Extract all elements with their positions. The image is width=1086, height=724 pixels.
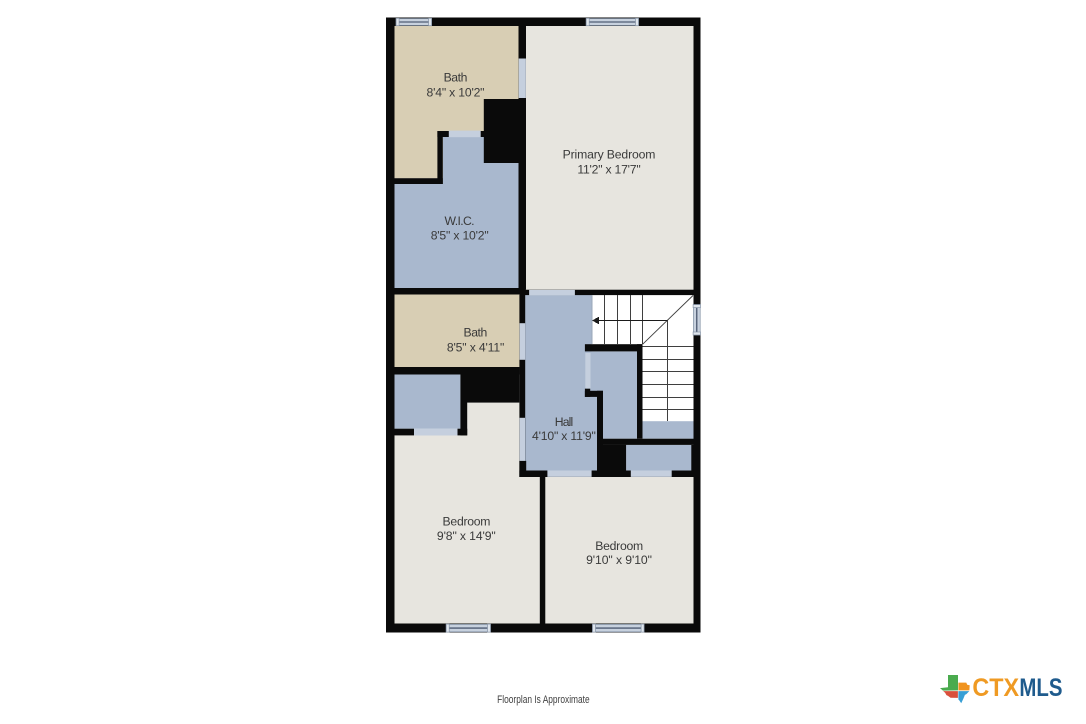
svg-text:MLS: MLS bbox=[1019, 674, 1062, 702]
svg-text:8'4" x 10'2": 8'4" x 10'2" bbox=[427, 86, 485, 100]
svg-text:Bath: Bath bbox=[464, 325, 488, 339]
svg-text:W.I.C.: W.I.C. bbox=[445, 214, 475, 228]
svg-text:8'5" x 4'11": 8'5" x 4'11" bbox=[447, 341, 504, 355]
svg-text:4'10" x 11'9": 4'10" x 11'9" bbox=[532, 429, 596, 443]
svg-text:Floorplan Is Approximate: Floorplan Is Approximate bbox=[497, 694, 590, 706]
svg-text:Hall: Hall bbox=[555, 415, 574, 429]
svg-text:Primary Bedroom: Primary Bedroom bbox=[563, 148, 656, 162]
svg-text:9'8" x 14'9": 9'8" x 14'9" bbox=[437, 529, 496, 543]
svg-text:11'2" x 17'7": 11'2" x 17'7" bbox=[577, 162, 640, 176]
svg-text:CTX: CTX bbox=[972, 674, 1019, 702]
svg-text:Bedroom: Bedroom bbox=[443, 515, 491, 529]
svg-text:9'10" x 9'10": 9'10" x 9'10" bbox=[586, 553, 652, 567]
svg-text:8'5" x 10'2": 8'5" x 10'2" bbox=[431, 229, 489, 243]
svg-text:Bath: Bath bbox=[444, 71, 468, 85]
svg-text:Bedroom: Bedroom bbox=[595, 539, 643, 553]
